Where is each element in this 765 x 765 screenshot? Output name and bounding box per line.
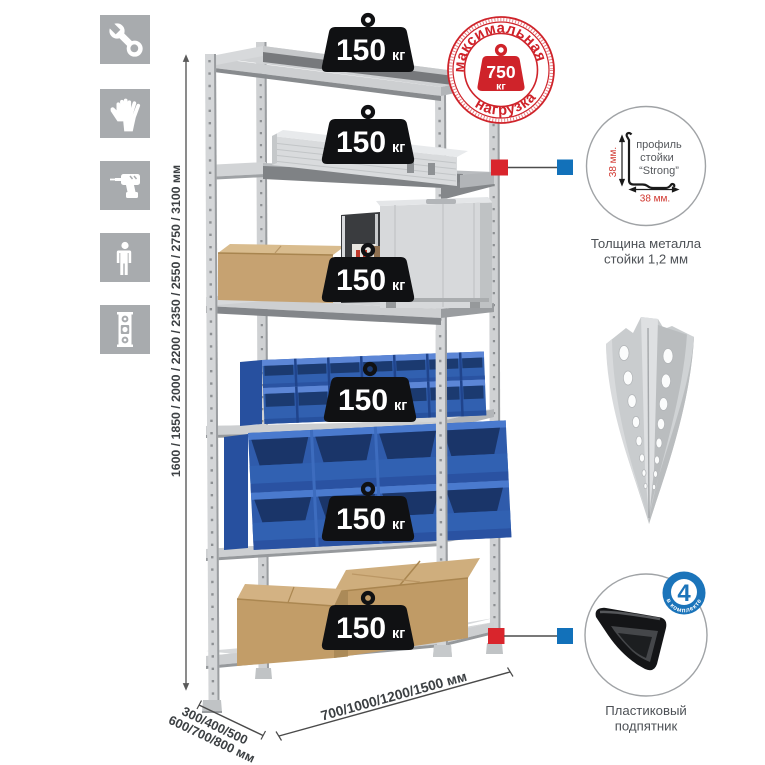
svg-text:38 мм.: 38 мм. <box>640 194 670 205</box>
svg-text:кг: кг <box>394 398 407 414</box>
svg-text:подпятник: подпятник <box>615 719 678 734</box>
svg-text:750: 750 <box>486 62 515 82</box>
svg-text:4: 4 <box>677 580 691 607</box>
svg-text:кг: кг <box>392 48 405 64</box>
svg-text:“Strong”: “Strong” <box>639 165 679 177</box>
svg-text:38 мм.: 38 мм. <box>608 147 619 177</box>
svg-text:150: 150 <box>336 126 386 159</box>
svg-text:стойки: стойки <box>640 152 674 164</box>
svg-text:Пластиковый: Пластиковый <box>605 703 687 718</box>
svg-text:кг: кг <box>392 140 405 156</box>
svg-text:Толщина металла: Толщина металла <box>591 236 702 251</box>
svg-text:кг: кг <box>392 626 405 642</box>
svg-text:150: 150 <box>336 264 386 297</box>
svg-text:кг: кг <box>496 81 506 93</box>
svg-text:1600 / 1850 / 2000 / 2200 / 23: 1600 / 1850 / 2000 / 2200 / 2350 / 2550 … <box>169 165 183 477</box>
svg-text:150: 150 <box>338 384 388 417</box>
svg-text:150: 150 <box>336 612 386 645</box>
svg-text:стойки 1,2 мм: стойки 1,2 мм <box>604 252 688 267</box>
svg-text:150: 150 <box>336 503 386 536</box>
svg-text:кг: кг <box>392 278 405 294</box>
svg-text:кг: кг <box>392 517 405 533</box>
svg-text:профиль: профиль <box>636 139 682 151</box>
svg-text:150: 150 <box>336 34 386 67</box>
